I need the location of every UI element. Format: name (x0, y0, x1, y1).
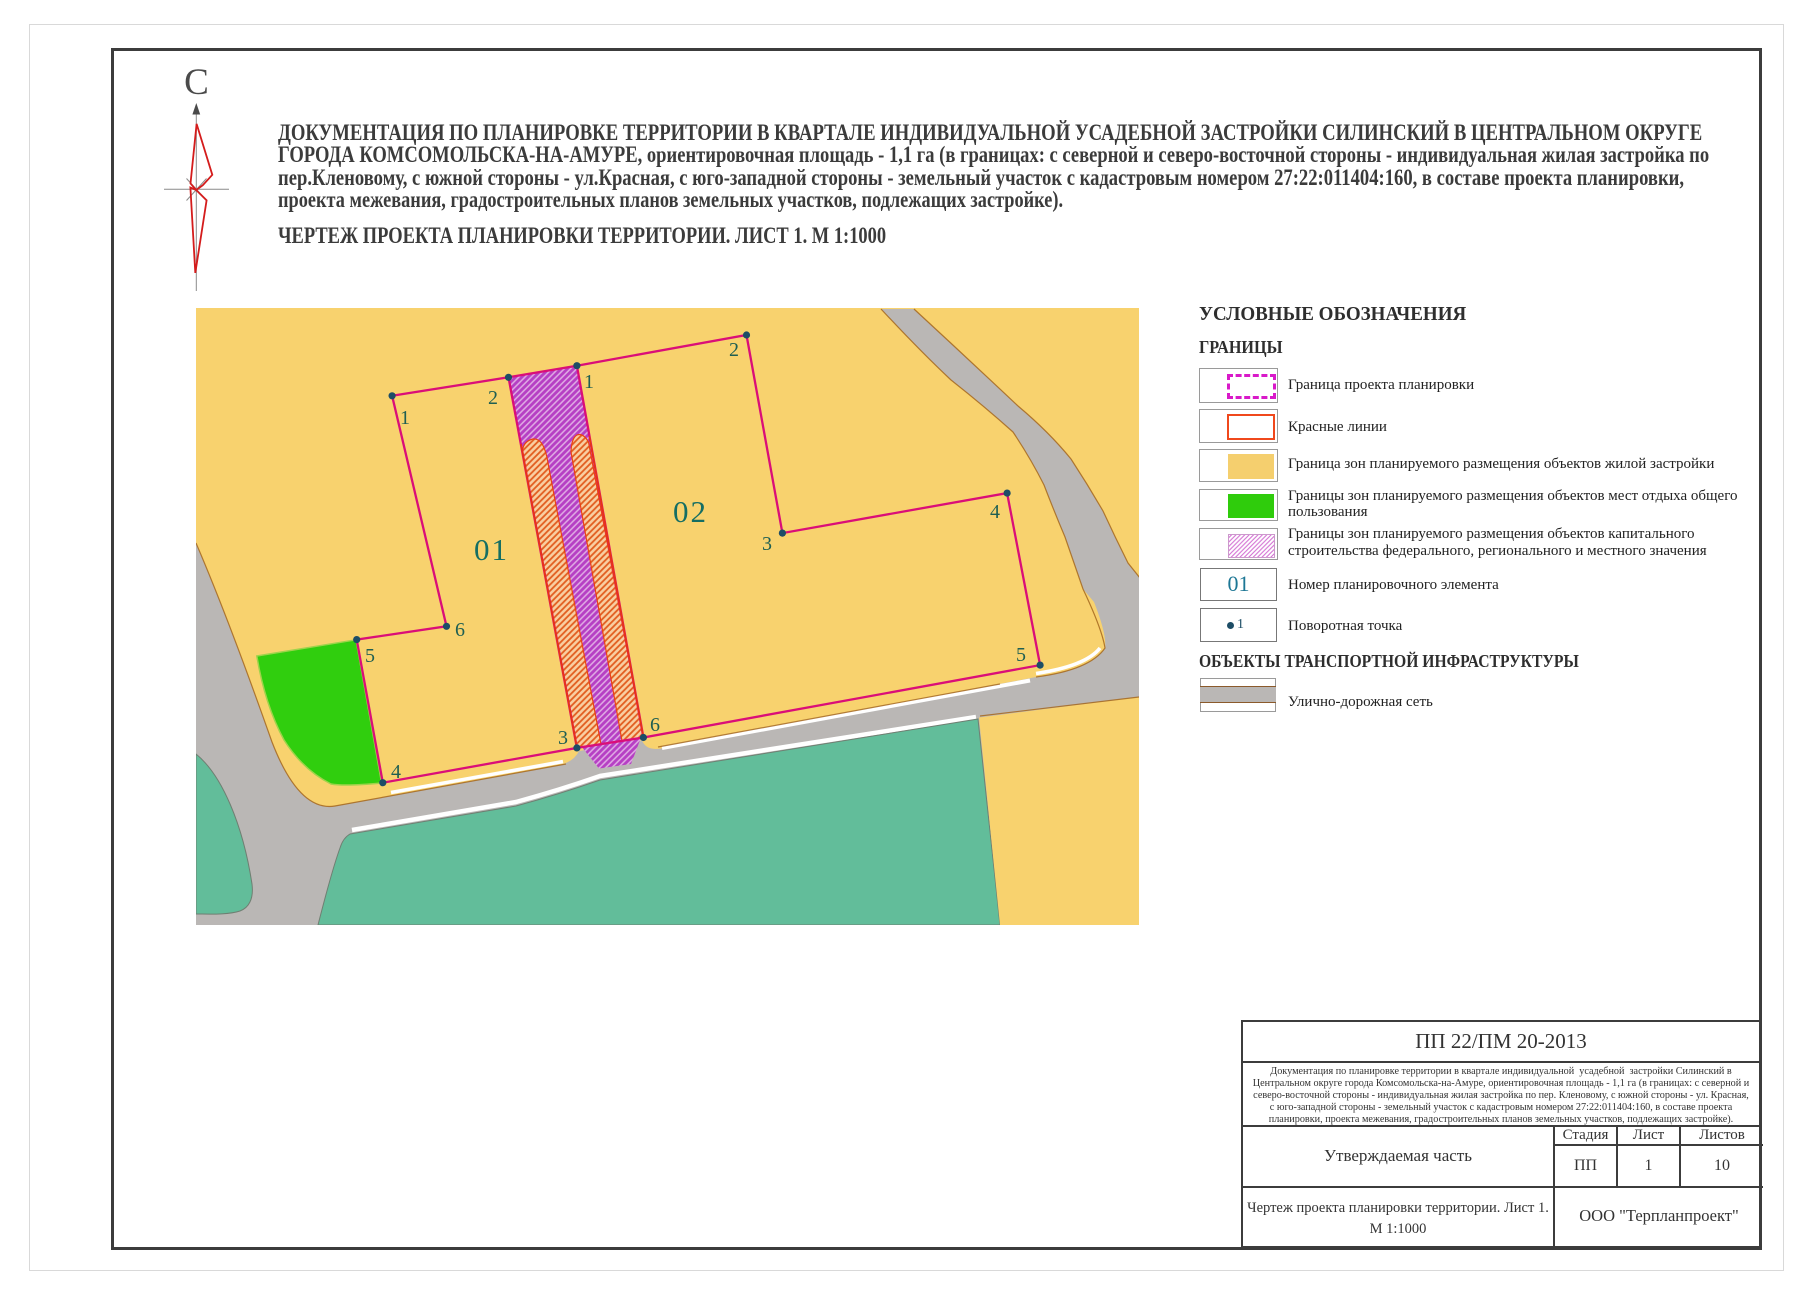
svg-text:4: 4 (990, 501, 1000, 523)
svg-text:5: 5 (365, 645, 375, 667)
svg-text:2: 2 (729, 339, 739, 361)
svg-text:02: 02 (673, 494, 708, 529)
svg-text:6: 6 (455, 619, 465, 641)
svg-text:3: 3 (558, 727, 568, 749)
svg-text:01: 01 (474, 532, 509, 567)
svg-text:2: 2 (488, 387, 498, 409)
svg-text:1: 1 (584, 371, 594, 393)
svg-text:C: C (184, 62, 209, 103)
svg-text:6: 6 (650, 714, 660, 736)
svg-text:5: 5 (1016, 644, 1026, 666)
svg-text:1: 1 (400, 407, 410, 429)
svg-text:3: 3 (762, 533, 772, 555)
svg-text:4: 4 (391, 761, 401, 783)
